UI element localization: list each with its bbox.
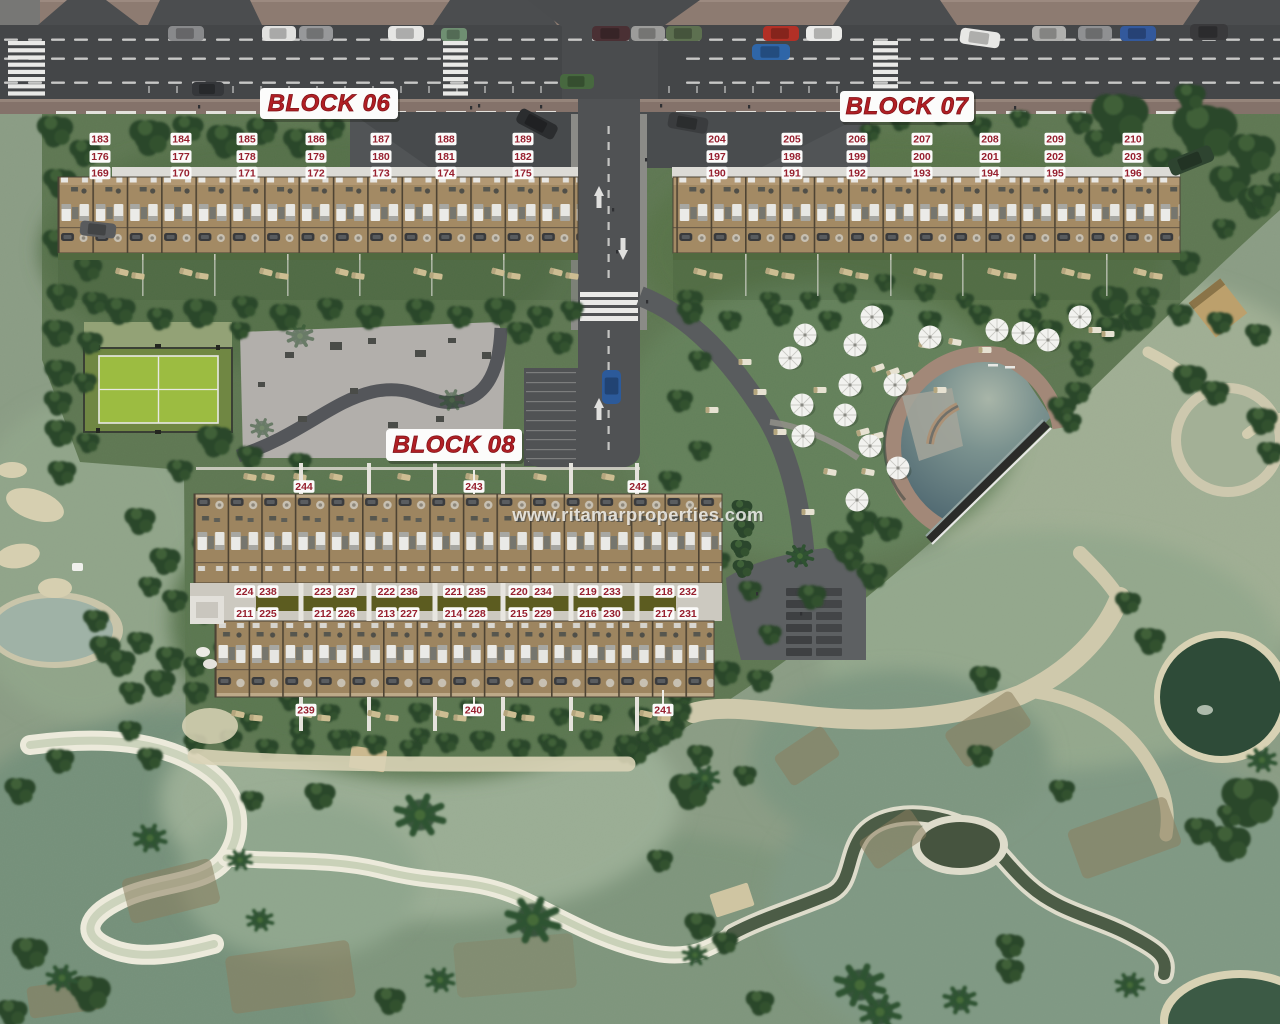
svg-text:198: 198 (783, 151, 801, 163)
svg-text:175: 175 (514, 167, 532, 179)
svg-text:183: 183 (91, 133, 109, 145)
svg-text:173: 173 (372, 167, 390, 179)
svg-text:180: 180 (372, 151, 390, 163)
svg-text:217: 217 (655, 608, 673, 620)
svg-text:214: 214 (445, 608, 463, 620)
svg-text:199: 199 (848, 151, 866, 163)
svg-text:BLOCK 06: BLOCK 06 (268, 90, 391, 117)
svg-text:194: 194 (981, 167, 999, 179)
svg-text:169: 169 (91, 167, 109, 179)
svg-text:200: 200 (913, 151, 931, 163)
svg-text:189: 189 (514, 133, 532, 145)
svg-text:227: 227 (400, 608, 418, 620)
svg-text:192: 192 (848, 167, 866, 179)
svg-text:221: 221 (445, 586, 463, 598)
svg-text:172: 172 (307, 167, 325, 179)
svg-text:185: 185 (238, 133, 256, 145)
svg-text:208: 208 (981, 133, 999, 145)
svg-text:223: 223 (314, 586, 332, 598)
svg-text:237: 237 (338, 586, 356, 598)
svg-text:207: 207 (913, 133, 931, 145)
svg-text:230: 230 (603, 608, 621, 620)
svg-text:226: 226 (338, 608, 356, 620)
svg-text:220: 220 (510, 586, 528, 598)
svg-text:213: 213 (378, 608, 396, 620)
svg-text:232: 232 (679, 586, 697, 598)
svg-text:218: 218 (655, 586, 673, 598)
svg-text:231: 231 (679, 608, 697, 620)
svg-text:229: 229 (534, 608, 552, 620)
svg-text:181: 181 (437, 151, 455, 163)
svg-text:170: 170 (172, 167, 190, 179)
svg-text:206: 206 (848, 133, 866, 145)
svg-text:234: 234 (534, 586, 552, 598)
svg-text:215: 215 (510, 608, 528, 620)
svg-text:193: 193 (913, 167, 931, 179)
svg-text:225: 225 (259, 608, 277, 620)
svg-text:www.ritamarproperties.com: www.ritamarproperties.com (511, 504, 764, 525)
svg-text:222: 222 (378, 586, 396, 598)
svg-text:178: 178 (238, 151, 256, 163)
svg-text:202: 202 (1046, 151, 1064, 163)
svg-text:238: 238 (259, 586, 277, 598)
svg-text:209: 209 (1046, 133, 1064, 145)
svg-text:179: 179 (307, 151, 325, 163)
svg-text:182: 182 (514, 151, 532, 163)
svg-text:205: 205 (783, 133, 801, 145)
svg-text:216: 216 (579, 608, 597, 620)
svg-text:235: 235 (468, 586, 486, 598)
svg-text:177: 177 (172, 151, 190, 163)
svg-text:241: 241 (654, 704, 672, 716)
svg-text:201: 201 (981, 151, 999, 163)
svg-text:174: 174 (437, 167, 455, 179)
svg-text:236: 236 (400, 586, 418, 598)
svg-text:242: 242 (629, 481, 647, 493)
svg-text:187: 187 (372, 133, 390, 145)
svg-text:197: 197 (708, 151, 726, 163)
svg-text:228: 228 (468, 608, 486, 620)
svg-text:196: 196 (1124, 167, 1142, 179)
svg-text:204: 204 (708, 133, 726, 145)
svg-text:188: 188 (437, 133, 455, 145)
svg-text:240: 240 (465, 704, 483, 716)
svg-text:191: 191 (783, 167, 801, 179)
svg-text:195: 195 (1046, 167, 1064, 179)
svg-text:239: 239 (297, 704, 315, 716)
svg-text:224: 224 (236, 586, 254, 598)
svg-text:243: 243 (465, 481, 483, 493)
svg-text:244: 244 (295, 481, 313, 493)
svg-text:219: 219 (579, 586, 597, 598)
svg-text:211: 211 (236, 608, 253, 620)
svg-text:210: 210 (1124, 133, 1142, 145)
svg-text:184: 184 (172, 133, 190, 145)
svg-text:171: 171 (238, 167, 256, 179)
svg-text:203: 203 (1124, 151, 1142, 163)
svg-text:176: 176 (91, 151, 109, 163)
svg-text:190: 190 (708, 167, 726, 179)
svg-text:233: 233 (603, 586, 621, 598)
svg-text:BLOCK 07: BLOCK 07 (846, 93, 970, 120)
svg-text:186: 186 (307, 133, 325, 145)
svg-text:BLOCK 08: BLOCK 08 (393, 431, 516, 458)
svg-text:212: 212 (314, 608, 332, 620)
